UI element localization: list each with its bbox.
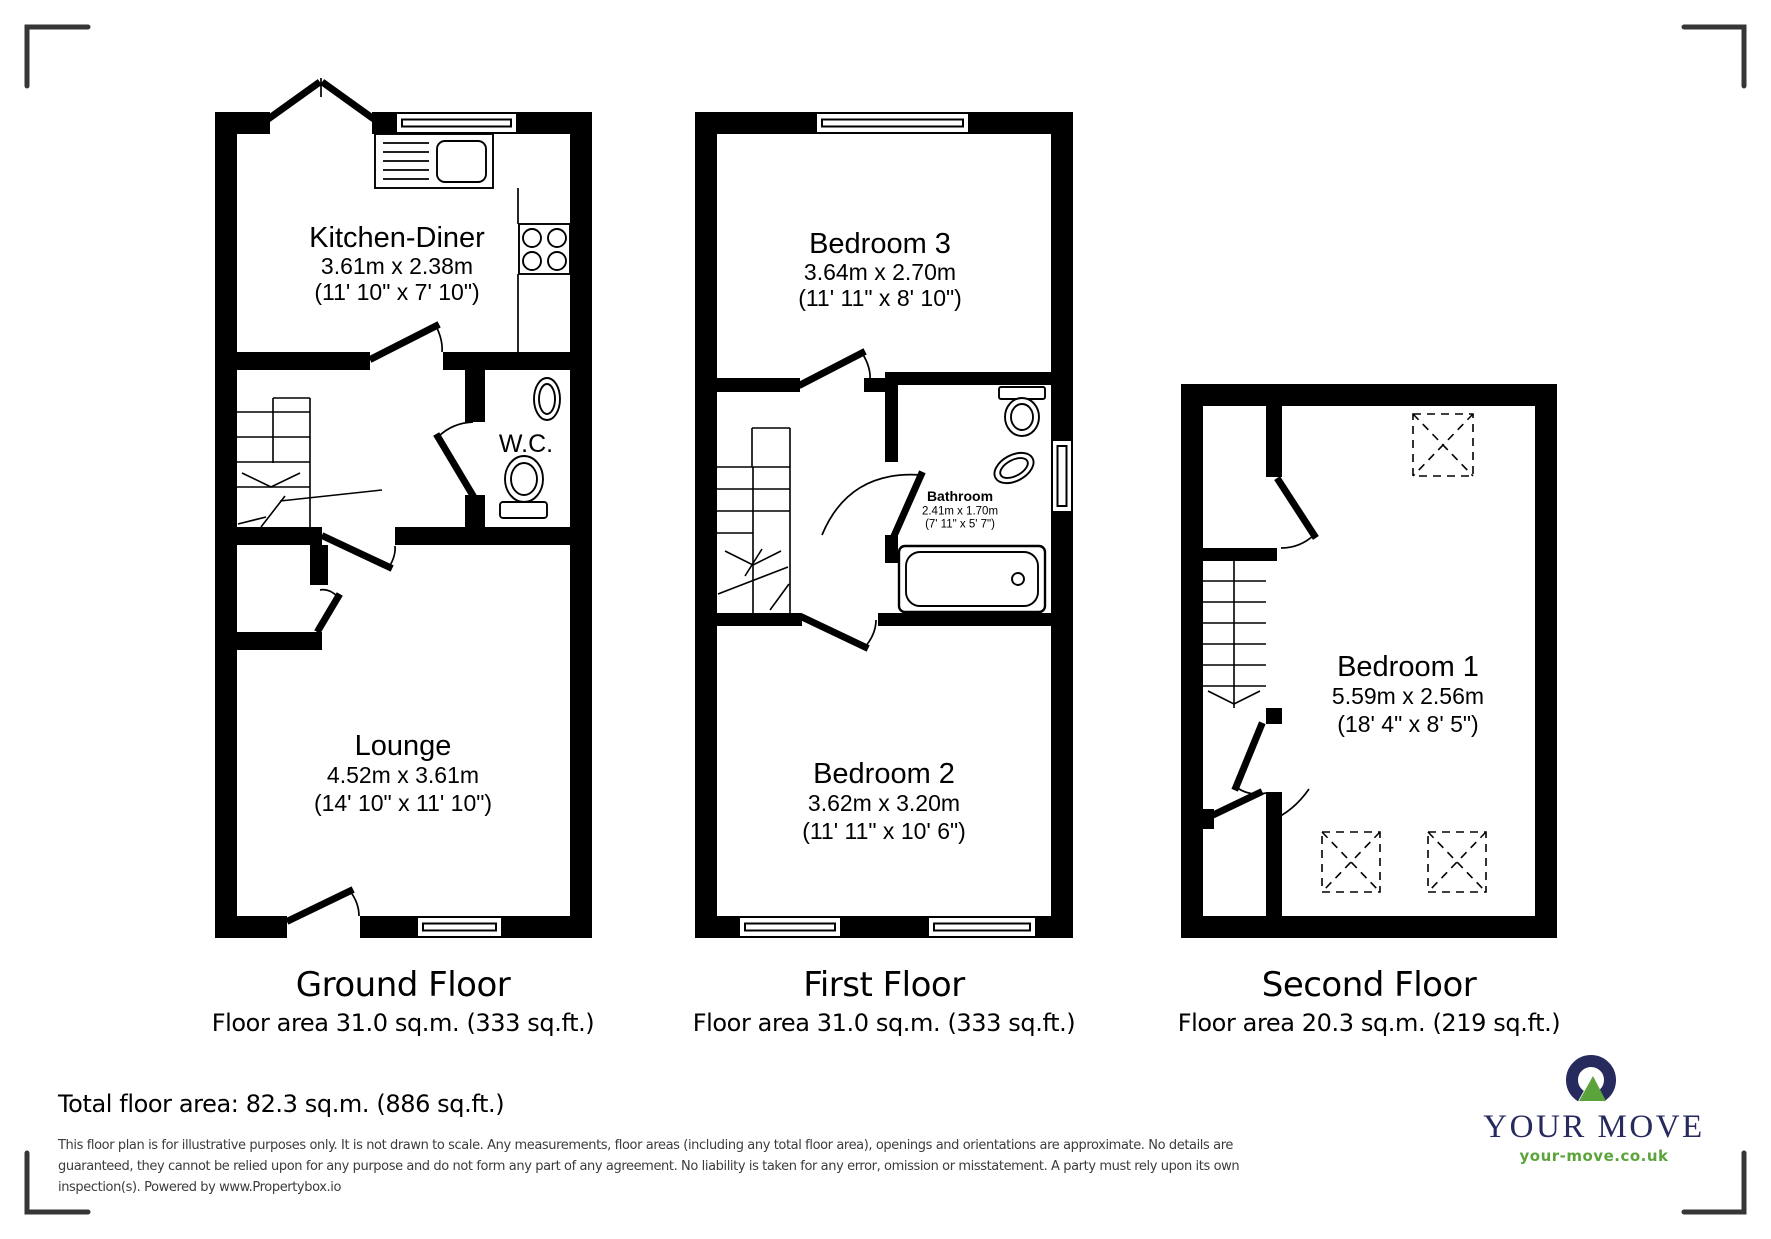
kitchen-sink-unit-icon (375, 134, 493, 188)
floorplan-page: Kitchen-Diner 3.61m x 2.38m (11' 10" x 7… (0, 0, 1771, 1239)
wall (1266, 708, 1282, 724)
room-dim-imperial-bedroom2: (11' 11" x 10' 6") (802, 818, 966, 844)
room-dim-imperial-lounge: (14' 10" x 11' 10") (314, 790, 492, 816)
wall (215, 916, 287, 938)
ground-floor-plan: Kitchen-Diner 3.61m x 2.38m (11' 10" x 7… (215, 78, 592, 938)
room-label-lounge: Lounge (355, 730, 452, 762)
skylight (1428, 832, 1486, 892)
door (822, 475, 921, 536)
wall (885, 372, 1051, 385)
wall (1181, 916, 1557, 938)
caption-second-area: Floor area 20.3 sq.m. (219 sq.ft.) (1178, 1009, 1561, 1037)
window (396, 113, 517, 133)
caption-ground-floor: Ground Floor (296, 965, 511, 1005)
window (1052, 440, 1072, 512)
wall (878, 613, 1051, 626)
hob-icon (519, 224, 570, 274)
brand-url: your-move.co.uk (1519, 1147, 1669, 1165)
wall (842, 916, 927, 938)
room-dim-metric-bedroom3: 3.64m x 2.70m (804, 259, 956, 285)
skylight (1322, 832, 1380, 892)
disclaimer-line-2: guaranteed, they cannot be relied upon f… (58, 1159, 1239, 1174)
wall (885, 372, 898, 462)
wall (215, 112, 237, 938)
door (804, 618, 876, 647)
wall (1266, 406, 1282, 477)
first-floor-plan: Bedroom 3 3.64m x 2.70m (11' 11" x 8' 10… (695, 112, 1073, 938)
wall (215, 112, 270, 134)
wall (443, 352, 570, 370)
room-label-bathroom: Bathroom (927, 488, 993, 504)
corner-bracket-bottom-right (1684, 1153, 1744, 1212)
floorplan-canvas: Kitchen-Diner 3.61m x 2.38m (11' 10" x 7… (0, 0, 1771, 1239)
staircase (717, 428, 790, 613)
wall (372, 112, 397, 134)
wall (1037, 916, 1073, 938)
window (417, 917, 502, 937)
door (373, 326, 442, 358)
room-dim-metric-bathroom: 2.41m x 1.70m (922, 506, 998, 518)
wall (465, 370, 485, 422)
disclaimer-line-3: inspection(s). Powered by www.Propertybo… (58, 1180, 341, 1195)
door (438, 422, 473, 494)
room-dim-imperial-kitchen: (11' 10" x 7' 10") (314, 279, 479, 305)
wall (1535, 384, 1557, 938)
caption-second-floor: Second Floor (1262, 965, 1477, 1005)
wall (310, 545, 328, 585)
total-floor-area: Total floor area: 82.3 sq.m. (886 sq.ft.… (57, 1090, 504, 1118)
wall (1203, 548, 1277, 561)
sink-icon (534, 378, 560, 420)
sink-icon (989, 447, 1038, 490)
window (816, 113, 969, 133)
disclaimer-line-1: This floor plan is for illustrative purp… (57, 1138, 1233, 1153)
logo-ring-icon (1572, 1061, 1610, 1112)
brand-logo: YOUR MOVE your-move.co.uk (1483, 1061, 1704, 1165)
door (325, 537, 395, 567)
wall (395, 527, 570, 545)
skylight (1413, 414, 1473, 476)
room-dim-imperial-bedroom1: (18' 4" x 8' 5") (1337, 711, 1478, 737)
room-dim-imperial-bedroom3: (11' 11" x 8' 10") (798, 285, 962, 311)
room-dim-metric-bedroom1: 5.59m x 2.56m (1332, 683, 1484, 709)
wall (1181, 384, 1557, 406)
wall (864, 378, 885, 392)
staircase (237, 398, 382, 545)
wall (517, 112, 592, 134)
wall (1051, 112, 1073, 938)
door (1211, 789, 1309, 821)
room-dim-metric-bedroom2: 3.62m x 3.20m (808, 790, 960, 816)
corner-bracket-top-left (27, 27, 88, 86)
door (1236, 726, 1266, 794)
door (319, 590, 338, 629)
room-label-wc: W.C. (499, 430, 553, 458)
wall (570, 112, 592, 938)
wall (717, 613, 802, 626)
window (928, 917, 1036, 937)
room-dim-metric-kitchen: 3.61m x 2.38m (321, 253, 473, 279)
wall (1266, 792, 1282, 916)
second-floor-plan: Bedroom 1 5.59m x 2.56m (18' 4" x 8' 5") (1181, 384, 1557, 938)
door (1279, 481, 1314, 548)
front-door (290, 891, 359, 920)
wall (695, 112, 815, 134)
wall (695, 916, 738, 938)
toilet-icon (999, 387, 1045, 436)
caption-first-area: Floor area 31.0 sq.m. (333 sq.ft.) (693, 1009, 1076, 1037)
wall (237, 352, 370, 370)
room-label-bedroom2: Bedroom 2 (813, 758, 955, 790)
brand-name: YOUR MOVE (1483, 1109, 1704, 1145)
room-dim-imperial-bathroom: (7' 11" x 5' 7") (925, 519, 995, 531)
room-label-bedroom1: Bedroom 1 (1337, 651, 1479, 683)
wall (1181, 384, 1203, 938)
caption-ground-area: Floor area 31.0 sq.m. (333 sq.ft.) (212, 1009, 595, 1037)
room-dim-metric-lounge: 4.52m x 3.61m (327, 762, 479, 788)
caption-first-floor: First Floor (803, 965, 965, 1005)
wall (695, 112, 717, 938)
wall (717, 378, 800, 392)
toilet-icon (500, 456, 547, 518)
staircase (1203, 561, 1266, 708)
corner-bracket-top-right (1684, 27, 1744, 86)
bathtub-icon (899, 546, 1045, 612)
door (802, 353, 870, 384)
wall (360, 916, 417, 938)
wall (970, 112, 1073, 134)
wall (237, 632, 322, 650)
window (739, 917, 841, 937)
wall (502, 916, 592, 938)
room-label-bedroom3: Bedroom 3 (809, 228, 951, 260)
room-label-kitchen: Kitchen-Diner (309, 222, 485, 254)
